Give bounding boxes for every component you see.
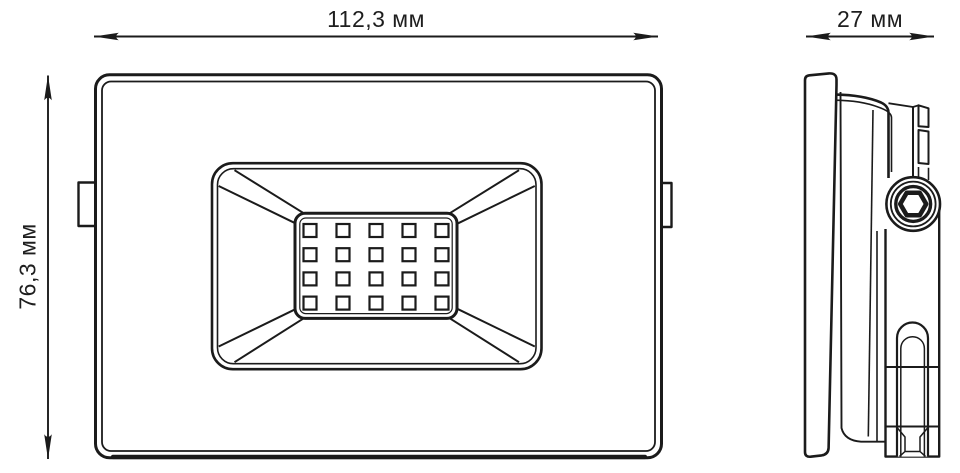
back-plate-top-edge bbox=[889, 103, 919, 107]
housing-mid-line bbox=[868, 110, 873, 437]
led-chip bbox=[304, 248, 317, 261]
housing-top-inner-line bbox=[836, 100, 892, 172]
led-chip bbox=[436, 272, 449, 285]
housing-side bbox=[836, 92, 892, 442]
mounting-bracket bbox=[886, 210, 940, 457]
led-chip bbox=[436, 248, 449, 261]
led-chip bbox=[403, 297, 416, 310]
led-chip bbox=[337, 248, 350, 261]
led-chip bbox=[436, 297, 449, 310]
dimension-depth: 27 мм bbox=[806, 6, 934, 37]
led-chip bbox=[436, 224, 449, 237]
led-panel bbox=[295, 213, 457, 318]
housing-front-face-line bbox=[841, 92, 886, 442]
side-view: 27 мм bbox=[805, 6, 940, 457]
led-chip bbox=[370, 224, 383, 237]
led-chip bbox=[304, 224, 317, 237]
dimension-width: 112,3 мм bbox=[94, 6, 658, 37]
fin-lower bbox=[919, 130, 929, 164]
dimension-width-label: 112,3 мм bbox=[327, 6, 425, 32]
led-chip bbox=[304, 297, 317, 310]
heatsink-fins bbox=[889, 103, 929, 180]
dimension-height: 76,3 мм bbox=[15, 76, 49, 460]
technical-drawing: 112,3 мм 76,3 мм bbox=[0, 0, 960, 473]
led-chip bbox=[304, 272, 317, 285]
led-chip bbox=[370, 248, 383, 261]
led-chip bbox=[403, 248, 416, 261]
drawing-canvas: 112,3 мм 76,3 мм bbox=[0, 0, 960, 473]
dimension-height-label: 76,3 мм bbox=[15, 223, 41, 309]
led-chip bbox=[403, 224, 416, 237]
led-chip bbox=[337, 297, 350, 310]
front-view: 112,3 мм 76,3 мм bbox=[15, 6, 672, 459]
dimension-depth-label: 27 мм bbox=[837, 6, 903, 32]
mounting-tab-left bbox=[79, 183, 96, 227]
led-chip bbox=[370, 297, 383, 310]
led-chip bbox=[337, 272, 350, 285]
led-chip bbox=[337, 224, 350, 237]
led-chip bbox=[403, 272, 416, 285]
fin-upper bbox=[919, 105, 929, 127]
led-chip bbox=[370, 272, 383, 285]
hex-socket-bolt-icon bbox=[886, 177, 940, 231]
front-glass-panel bbox=[805, 73, 837, 456]
